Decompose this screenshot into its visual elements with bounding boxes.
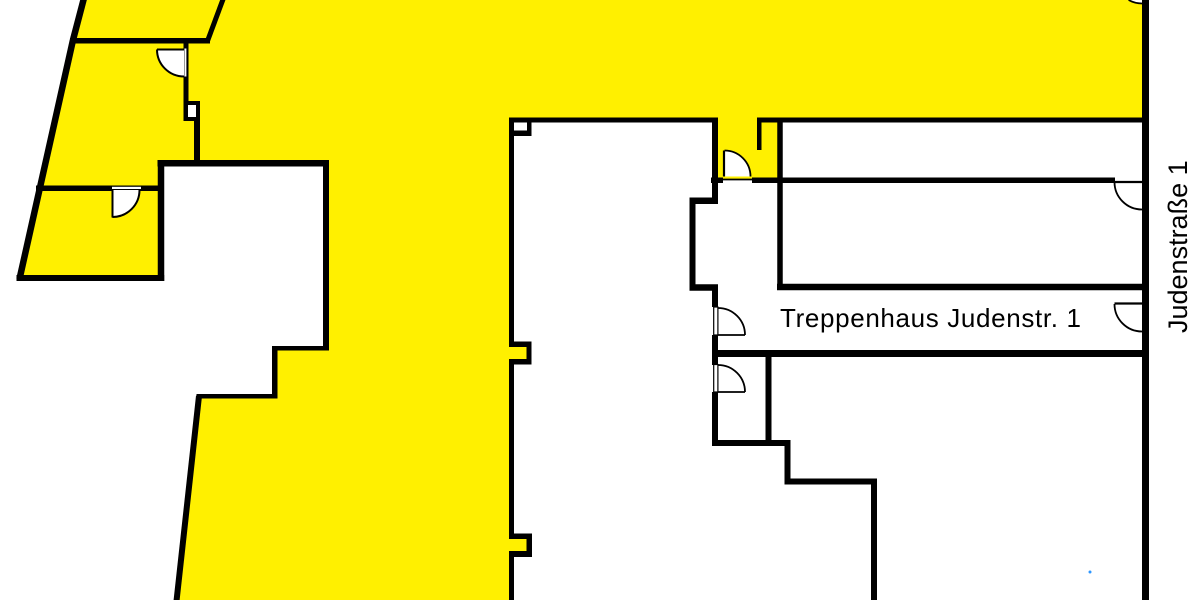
svg-text:Judenstraße 1: Judenstraße 1: [1163, 160, 1193, 333]
svg-text:Treppenhaus Judenstr. 1: Treppenhaus Judenstr. 1: [780, 303, 1082, 333]
